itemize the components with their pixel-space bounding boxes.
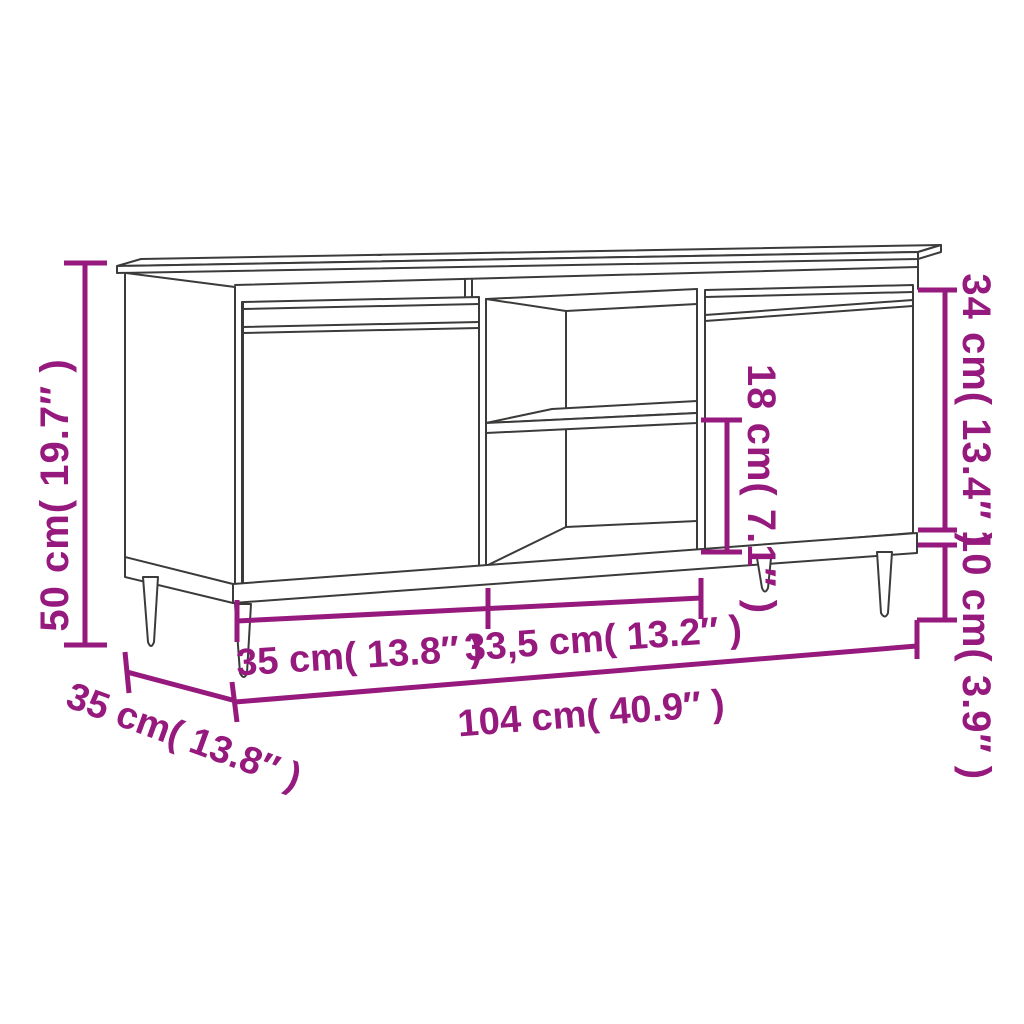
- left-side-panel: [125, 273, 242, 584]
- dimension-diagram: 50 cm( 19.7″ ) 34 cm( 13.4″ ) 10 cm( 3.9…: [0, 0, 1024, 1024]
- cabinet-drawing: [117, 245, 941, 677]
- overall-width-label: 104 cm( 40.9″ ): [456, 683, 726, 746]
- shelf-opening-height-label: 18 cm( 7.1″ ): [739, 364, 783, 614]
- leg-height-label: 10 cm( 3.9″ ): [954, 530, 998, 780]
- overall-depth-label: 35 cm( 13.8″ ): [61, 675, 307, 799]
- dim-overall-height: 50 cm( 19.7″ ): [33, 263, 107, 645]
- middle-shelf: [486, 401, 697, 433]
- diagram-svg: 50 cm( 19.7″ ) 34 cm( 13.4″ ) 10 cm( 3.9…: [0, 0, 1024, 1024]
- middle-compartment: [486, 289, 697, 566]
- overall-height-label: 50 cm( 19.7″ ): [33, 358, 77, 631]
- dim-leg-height: 10 cm( 3.9″ ): [917, 530, 998, 780]
- middle-section-width-label: 33,5 cm( 13.2″ ): [463, 608, 743, 669]
- dim-door-height: 34 cm( 13.4″ ): [918, 273, 998, 546]
- right-door: [705, 259, 918, 550]
- front-right-leg: [877, 552, 892, 617]
- left-gap-lines: [465, 280, 472, 297]
- left-door-width-label: 35 cm( 13.8″ ): [235, 628, 483, 685]
- left-door: [243, 297, 479, 584]
- door-height-label: 34 cm( 13.4″ ): [954, 273, 998, 546]
- back-left-leg: [143, 577, 158, 646]
